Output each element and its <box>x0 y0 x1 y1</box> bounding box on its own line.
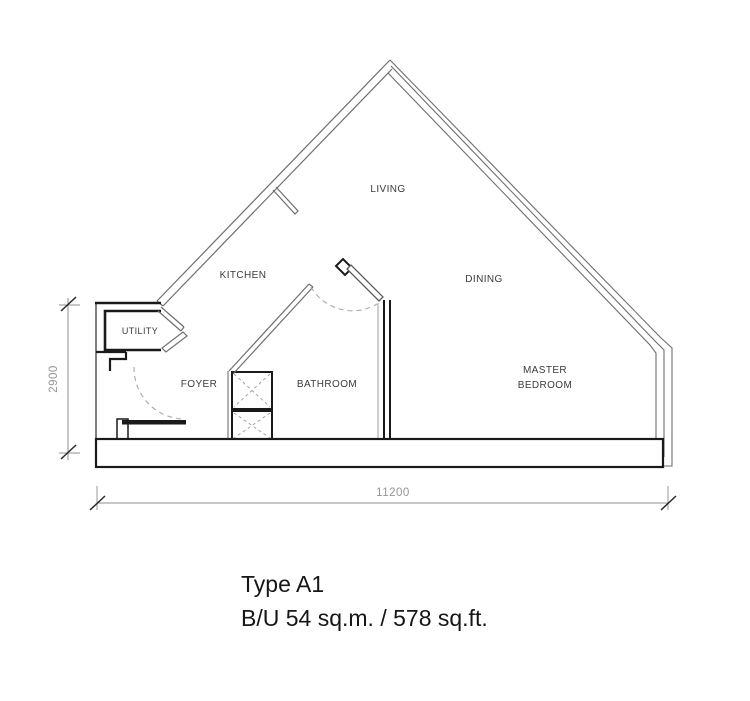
entry-door <box>96 352 183 419</box>
title-block: Type A1 B/U 54 sq.m. / 578 sq.ft. <box>241 571 488 631</box>
room-label-master-bedroom-line1: MASTER <box>523 365 567 376</box>
bottom-wall <box>96 439 663 467</box>
room-label-bathroom: BATHROOM <box>297 379 357 390</box>
room-labels: LIVING KITCHEN DINING UTILITY FOYER BATH… <box>122 184 572 391</box>
left-diagonal-wall <box>157 60 392 306</box>
room-label-kitchen: KITCHEN <box>220 270 267 281</box>
dimension-horizontal: 11200 <box>90 486 676 510</box>
window-wall <box>388 60 672 466</box>
unit-area-subtitle: B/U 54 sq.m. / 578 sq.ft. <box>241 605 488 631</box>
dimension-vertical: 2900 <box>48 297 80 460</box>
kitchen-stub-wall <box>273 187 298 214</box>
room-label-utility: UTILITY <box>122 326 158 336</box>
foyer-cabinet <box>117 419 186 439</box>
bathroom-door-leaf <box>347 265 383 301</box>
service-shafts <box>228 371 272 440</box>
dimension-vertical-label: 2900 <box>48 365 60 393</box>
unit-type-title: Type A1 <box>241 571 324 597</box>
room-label-living: LIVING <box>370 184 405 195</box>
floor-plan-page: 2900 11200 LIVING KITCHEN DINING UTILITY… <box>0 0 750 701</box>
bathroom-door-swing-arc <box>311 287 377 311</box>
room-label-master-bedroom-line2: BEDROOM <box>518 380 572 391</box>
room-label-dining: DINING <box>465 274 502 285</box>
floor-plan-drawing: 2900 11200 LIVING KITCHEN DINING UTILITY… <box>0 0 750 701</box>
divider-wall <box>378 300 390 439</box>
entry-door-swing-arc <box>134 367 183 419</box>
dimension-horizontal-label: 11200 <box>376 487 410 499</box>
room-label-foyer: FOYER <box>181 379 217 390</box>
